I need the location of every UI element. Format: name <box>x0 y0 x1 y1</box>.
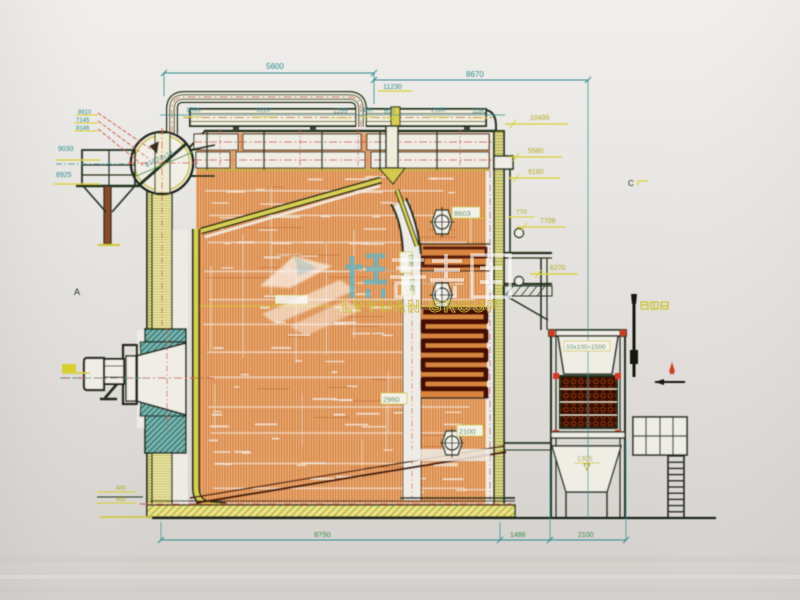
svg-text:10495: 10495 <box>530 115 550 122</box>
svg-text:770: 770 <box>516 209 527 216</box>
svg-text:1180: 1180 <box>472 108 486 115</box>
svg-text:2960: 2960 <box>383 395 400 404</box>
svg-text:1596: 1596 <box>186 107 201 114</box>
svg-text:9180: 9180 <box>528 169 544 176</box>
svg-text:8925: 8925 <box>56 172 72 179</box>
svg-text:8603: 8603 <box>454 209 471 218</box>
svg-text:5580: 5580 <box>528 148 544 155</box>
svg-text:8750: 8750 <box>314 530 331 539</box>
svg-text:8670: 8670 <box>466 70 484 79</box>
svg-text:480: 480 <box>362 107 373 114</box>
svg-text:10x100=1500: 10x100=1500 <box>566 344 606 351</box>
svg-text:400: 400 <box>116 497 127 503</box>
svg-text:2100: 2100 <box>459 427 476 436</box>
svg-text:9030: 9030 <box>58 146 74 153</box>
svg-text:1486: 1486 <box>510 532 526 539</box>
svg-text:400: 400 <box>116 486 127 492</box>
svg-text:A: A <box>74 287 80 297</box>
svg-text:C: C <box>628 179 634 188</box>
svg-text:11230: 11230 <box>383 84 402 91</box>
svg-text:2100: 2100 <box>578 532 594 539</box>
svg-text:1255: 1255 <box>333 108 348 115</box>
svg-text:6270: 6270 <box>550 265 566 272</box>
svg-text:2180: 2180 <box>431 107 446 114</box>
svg-text:LVYUAN GROUP: LVYUAN GROUP <box>342 298 500 316</box>
svg-text:5600: 5600 <box>266 62 284 71</box>
svg-text:1305: 1305 <box>577 456 593 463</box>
svg-text:7708: 7708 <box>540 218 556 225</box>
svg-text:3110: 3110 <box>256 107 270 114</box>
svg-text:600: 600 <box>384 108 395 115</box>
